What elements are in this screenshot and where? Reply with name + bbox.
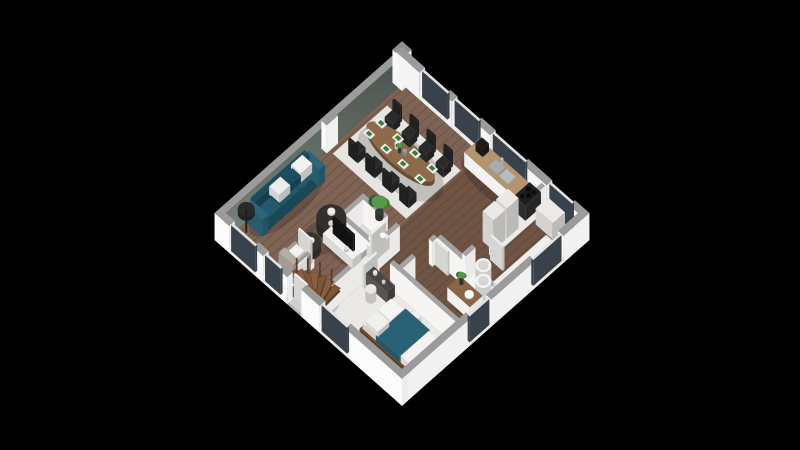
stair-post-2 xyxy=(307,257,310,274)
stair-post-3 xyxy=(319,261,322,278)
stair-post-4 xyxy=(330,268,333,285)
floor-lamp-pole xyxy=(245,208,247,233)
floorplan-render xyxy=(0,0,800,450)
floorplan-stage xyxy=(0,0,800,450)
stair-post-1 xyxy=(295,258,298,275)
